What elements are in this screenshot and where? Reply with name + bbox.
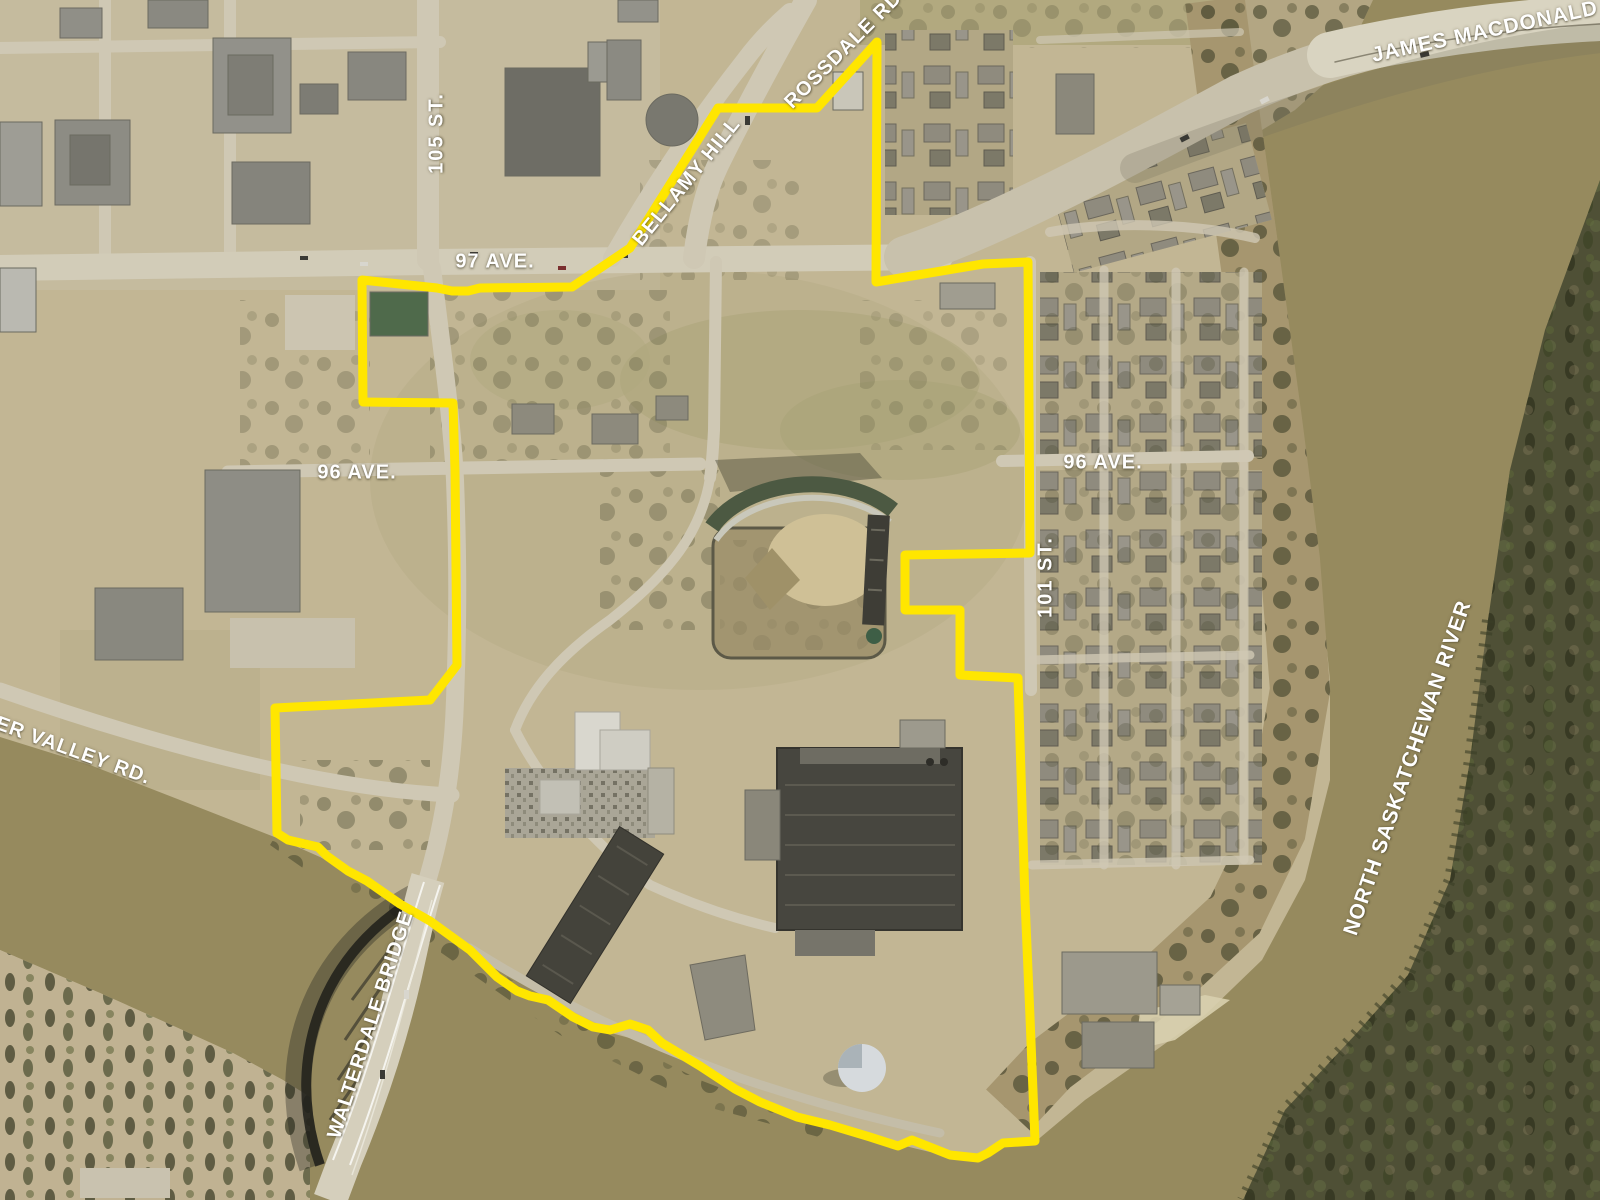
storage-tank (866, 628, 882, 644)
label-96-ave-east: 96 AVE. (1063, 452, 1142, 475)
label-96-ave-west: 96 AVE. (317, 462, 396, 485)
green-roof-building (370, 292, 428, 336)
label-97-ave: 97 AVE. (455, 251, 534, 274)
label-101-st: 101 ST. (1035, 536, 1058, 618)
power-plant (745, 720, 962, 956)
label-105-st: 105 ST. (426, 92, 449, 174)
map-art (0, 0, 1600, 1200)
aerial-map: JAMES MACDONALD BRIDGE ROSSDALE RD. BELL… (0, 0, 1600, 1200)
